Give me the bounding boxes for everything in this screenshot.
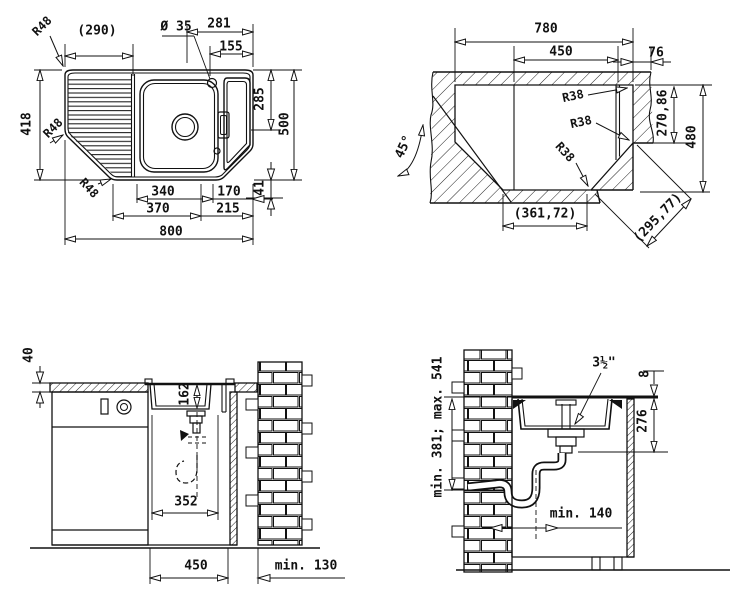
dim-3-5-inch-label: 3½" (592, 357, 615, 370)
dim-480-label: 480 (686, 125, 699, 148)
dim-352-label: 352 (174, 496, 197, 509)
dim-500-label: 500 (279, 112, 292, 135)
dim-40-label: 40 (23, 347, 36, 363)
drawing-canvas (0, 0, 735, 600)
dim-min381-max541-label: min. 381; max. 541 (432, 357, 445, 498)
dim-76-label: 76 (648, 47, 664, 60)
dim-41-label: 41 (254, 180, 267, 196)
dim-dia35-label: Ø 35 (160, 21, 191, 34)
dim-270-86-label: 270,86 (657, 90, 670, 137)
dim-418-label: 418 (21, 112, 34, 135)
dim-450-cabinet-label: 450 (184, 560, 207, 573)
section-view-right (444, 350, 730, 572)
dim-155-label: 155 (219, 41, 242, 54)
technical-drawing-page: (290) 281 Ø 35 155 R48 418 R48 R48 285 5… (0, 0, 735, 600)
dim-8-label: 8 (639, 370, 652, 378)
dim-780-label: 780 (534, 23, 557, 36)
dim-281-label: 281 (207, 18, 230, 31)
dim-min-130-label: min. 130 (275, 560, 338, 573)
dim-370-label: 370 (146, 203, 169, 216)
dim-450-cutout-label: 450 (549, 46, 572, 59)
dim-361-72-label: (361,72) (514, 208, 577, 221)
dim-162-label: 162 (179, 382, 192, 405)
dim-290-label: (290) (77, 25, 116, 38)
dim-340-label: 340 (151, 186, 174, 199)
dim-800-label: 800 (159, 226, 182, 239)
dim-215-label: 215 (216, 203, 239, 216)
dim-min-140-label: min. 140 (550, 508, 613, 521)
dim-170-label: 170 (217, 186, 240, 199)
dim-276-label: 276 (637, 409, 650, 432)
dim-285-label: 285 (254, 87, 267, 110)
